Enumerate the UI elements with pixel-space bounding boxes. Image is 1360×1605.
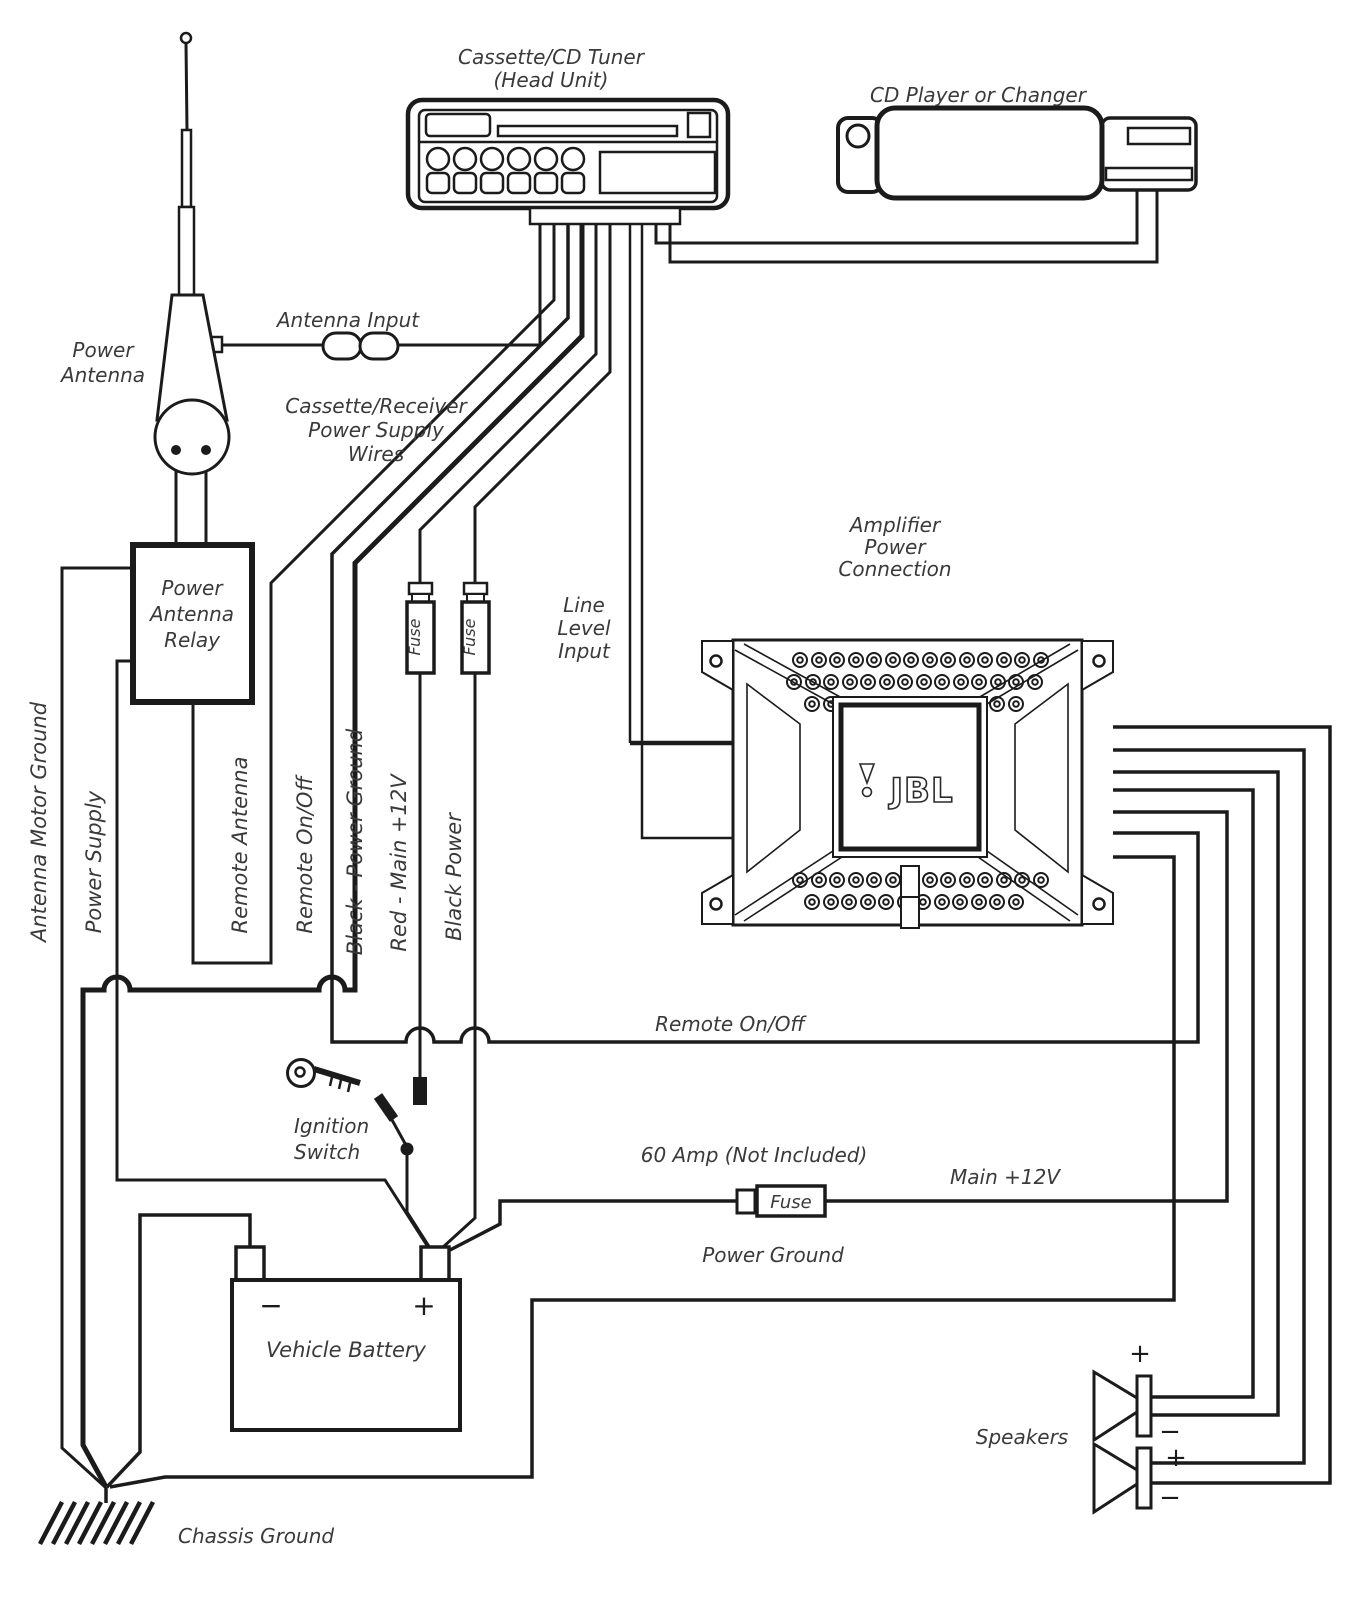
wire-label-antenna-motor-ground: Antenna Motor Ground bbox=[27, 701, 51, 944]
antenna-motor-ground-wire bbox=[62, 568, 133, 1486]
line-level-label-2: Level bbox=[557, 616, 611, 640]
wire-label-black-power-ground: Black - Power Ground bbox=[343, 728, 367, 955]
cd-changer bbox=[838, 108, 1196, 198]
fuse-label: Fuse bbox=[405, 618, 424, 655]
speaker-bar-bottom bbox=[1137, 1448, 1151, 1508]
head-unit-connector bbox=[530, 208, 680, 224]
chassis-ground-symbol bbox=[40, 1487, 153, 1544]
power-antenna bbox=[155, 33, 229, 474]
power-antenna-relay: Power Antenna Relay bbox=[133, 545, 252, 702]
head-unit-display-right bbox=[600, 152, 715, 193]
antenna-tip bbox=[181, 33, 191, 43]
battery-plus-sign: + bbox=[412, 1289, 435, 1322]
speaker-wire-1 bbox=[1113, 727, 1330, 1483]
battery-minus-sign: − bbox=[259, 1289, 282, 1322]
sixty-amp-label: 60 Amp (Not Included) bbox=[641, 1143, 868, 1167]
supply-wires-label-1: Cassette/Receiver bbox=[285, 394, 468, 418]
power-antenna-label-1: Power bbox=[72, 338, 135, 362]
head-unit-eject-button bbox=[688, 113, 710, 137]
remote-on-off-run-label: Remote On/Off bbox=[655, 1012, 807, 1036]
antenna-rod-mid bbox=[182, 130, 191, 207]
power-antenna-label-2: Antenna bbox=[59, 363, 145, 387]
head-unit bbox=[408, 100, 728, 224]
amplifier: JBL bbox=[702, 640, 1113, 928]
amp-connection-label-2: Power bbox=[864, 535, 927, 559]
wire-label-red-main-12v: Red - Main +12V bbox=[387, 773, 411, 952]
ignition-label-1: Ignition bbox=[294, 1114, 369, 1138]
antenna-pin-2 bbox=[201, 445, 211, 455]
relay-label-1: Power bbox=[161, 576, 224, 600]
antenna-rod-low bbox=[179, 207, 194, 295]
wire-label-black-power: Black Power bbox=[442, 812, 466, 941]
jbl-text: JBL bbox=[888, 771, 953, 811]
supply-wires-label-3: Wires bbox=[348, 442, 404, 466]
main-12v-label: Main +12V bbox=[950, 1165, 1061, 1189]
wire-label-remote-on-off: Remote On/Off bbox=[293, 774, 317, 934]
cd-changer-slot-bottom bbox=[1106, 168, 1192, 180]
speaker-wire-4 bbox=[1113, 790, 1253, 1397]
switch-pivot bbox=[401, 1143, 414, 1156]
antenna-pin-1 bbox=[171, 445, 181, 455]
wire-label-remote-antenna: Remote Antenna bbox=[228, 757, 252, 934]
fuse-black-power: Fuse bbox=[460, 583, 489, 673]
antenna-motor-base bbox=[155, 400, 229, 474]
speaker-bar-top bbox=[1137, 1376, 1151, 1436]
battery-label: Vehicle Battery bbox=[266, 1338, 426, 1362]
speaker-bottom-minus: − bbox=[1159, 1483, 1181, 1513]
antenna-rod-thin bbox=[186, 43, 187, 130]
head-unit-display-left bbox=[426, 114, 490, 136]
ignition-label-2: Switch bbox=[294, 1140, 360, 1164]
antenna-connector bbox=[323, 333, 398, 359]
speaker-top-plus: + bbox=[1129, 1339, 1151, 1369]
antenna-input-label: Antenna Input bbox=[275, 308, 420, 332]
supply-wires-label-2: Power Supply bbox=[308, 418, 445, 442]
speakers-label: Speakers bbox=[976, 1425, 1068, 1449]
head-unit-title-1: Cassette/CD Tuner bbox=[458, 45, 646, 69]
battery-terminal-negative bbox=[236, 1247, 264, 1280]
red-wire-terminal bbox=[413, 1077, 427, 1105]
battery-negative-wire bbox=[107, 1215, 250, 1487]
black-power-wire bbox=[442, 224, 610, 1248]
speaker-bottom-plus: + bbox=[1165, 1443, 1187, 1473]
speaker-icon-bottom bbox=[1094, 1444, 1137, 1512]
antenna-connector-left bbox=[323, 333, 361, 359]
cd-changer-body bbox=[877, 108, 1102, 198]
wiring-diagram: Power Antenna Relay Fuse Fuse Fuse bbox=[0, 0, 1360, 1600]
power-ground-label: Power Ground bbox=[702, 1243, 844, 1267]
cd-changer-title: CD Player or Changer bbox=[870, 83, 1088, 107]
relay-label-3: Relay bbox=[164, 628, 221, 652]
battery-terminal-positive bbox=[421, 1247, 449, 1280]
switch-arm bbox=[381, 1100, 407, 1147]
key-icon bbox=[288, 1060, 361, 1093]
amp-connection-label-1: Amplifier bbox=[848, 513, 942, 537]
speaker-icon-top bbox=[1094, 1372, 1137, 1440]
head-unit-title-2: (Head Unit) bbox=[494, 68, 609, 92]
cd-changer-knob bbox=[847, 125, 869, 147]
amp-connection-label-3: Connection bbox=[838, 557, 951, 581]
fuse-label: Fuse bbox=[770, 1192, 811, 1213]
line-level-label-1: Line bbox=[563, 593, 605, 617]
speakers bbox=[1094, 1372, 1151, 1512]
fuse-red-main: Fuse bbox=[405, 583, 434, 673]
relay-label-2: Antenna bbox=[148, 602, 234, 626]
fuse-60-amp: Fuse bbox=[737, 1186, 825, 1216]
cassette-slot bbox=[498, 126, 677, 136]
cd-changer-wire-2 bbox=[670, 190, 1157, 262]
line-level-label-3: Input bbox=[558, 639, 611, 663]
antenna-connector-right bbox=[360, 333, 398, 359]
cd-changer-slot-top bbox=[1128, 128, 1190, 144]
fuse-label: Fuse bbox=[460, 618, 479, 655]
chassis-ground-label: Chassis Ground bbox=[178, 1524, 334, 1548]
line-level-wire-2 bbox=[642, 224, 734, 838]
wire-label-power-supply: Power Supply bbox=[82, 790, 106, 933]
vehicle-battery: − + Vehicle Battery bbox=[232, 1247, 460, 1430]
